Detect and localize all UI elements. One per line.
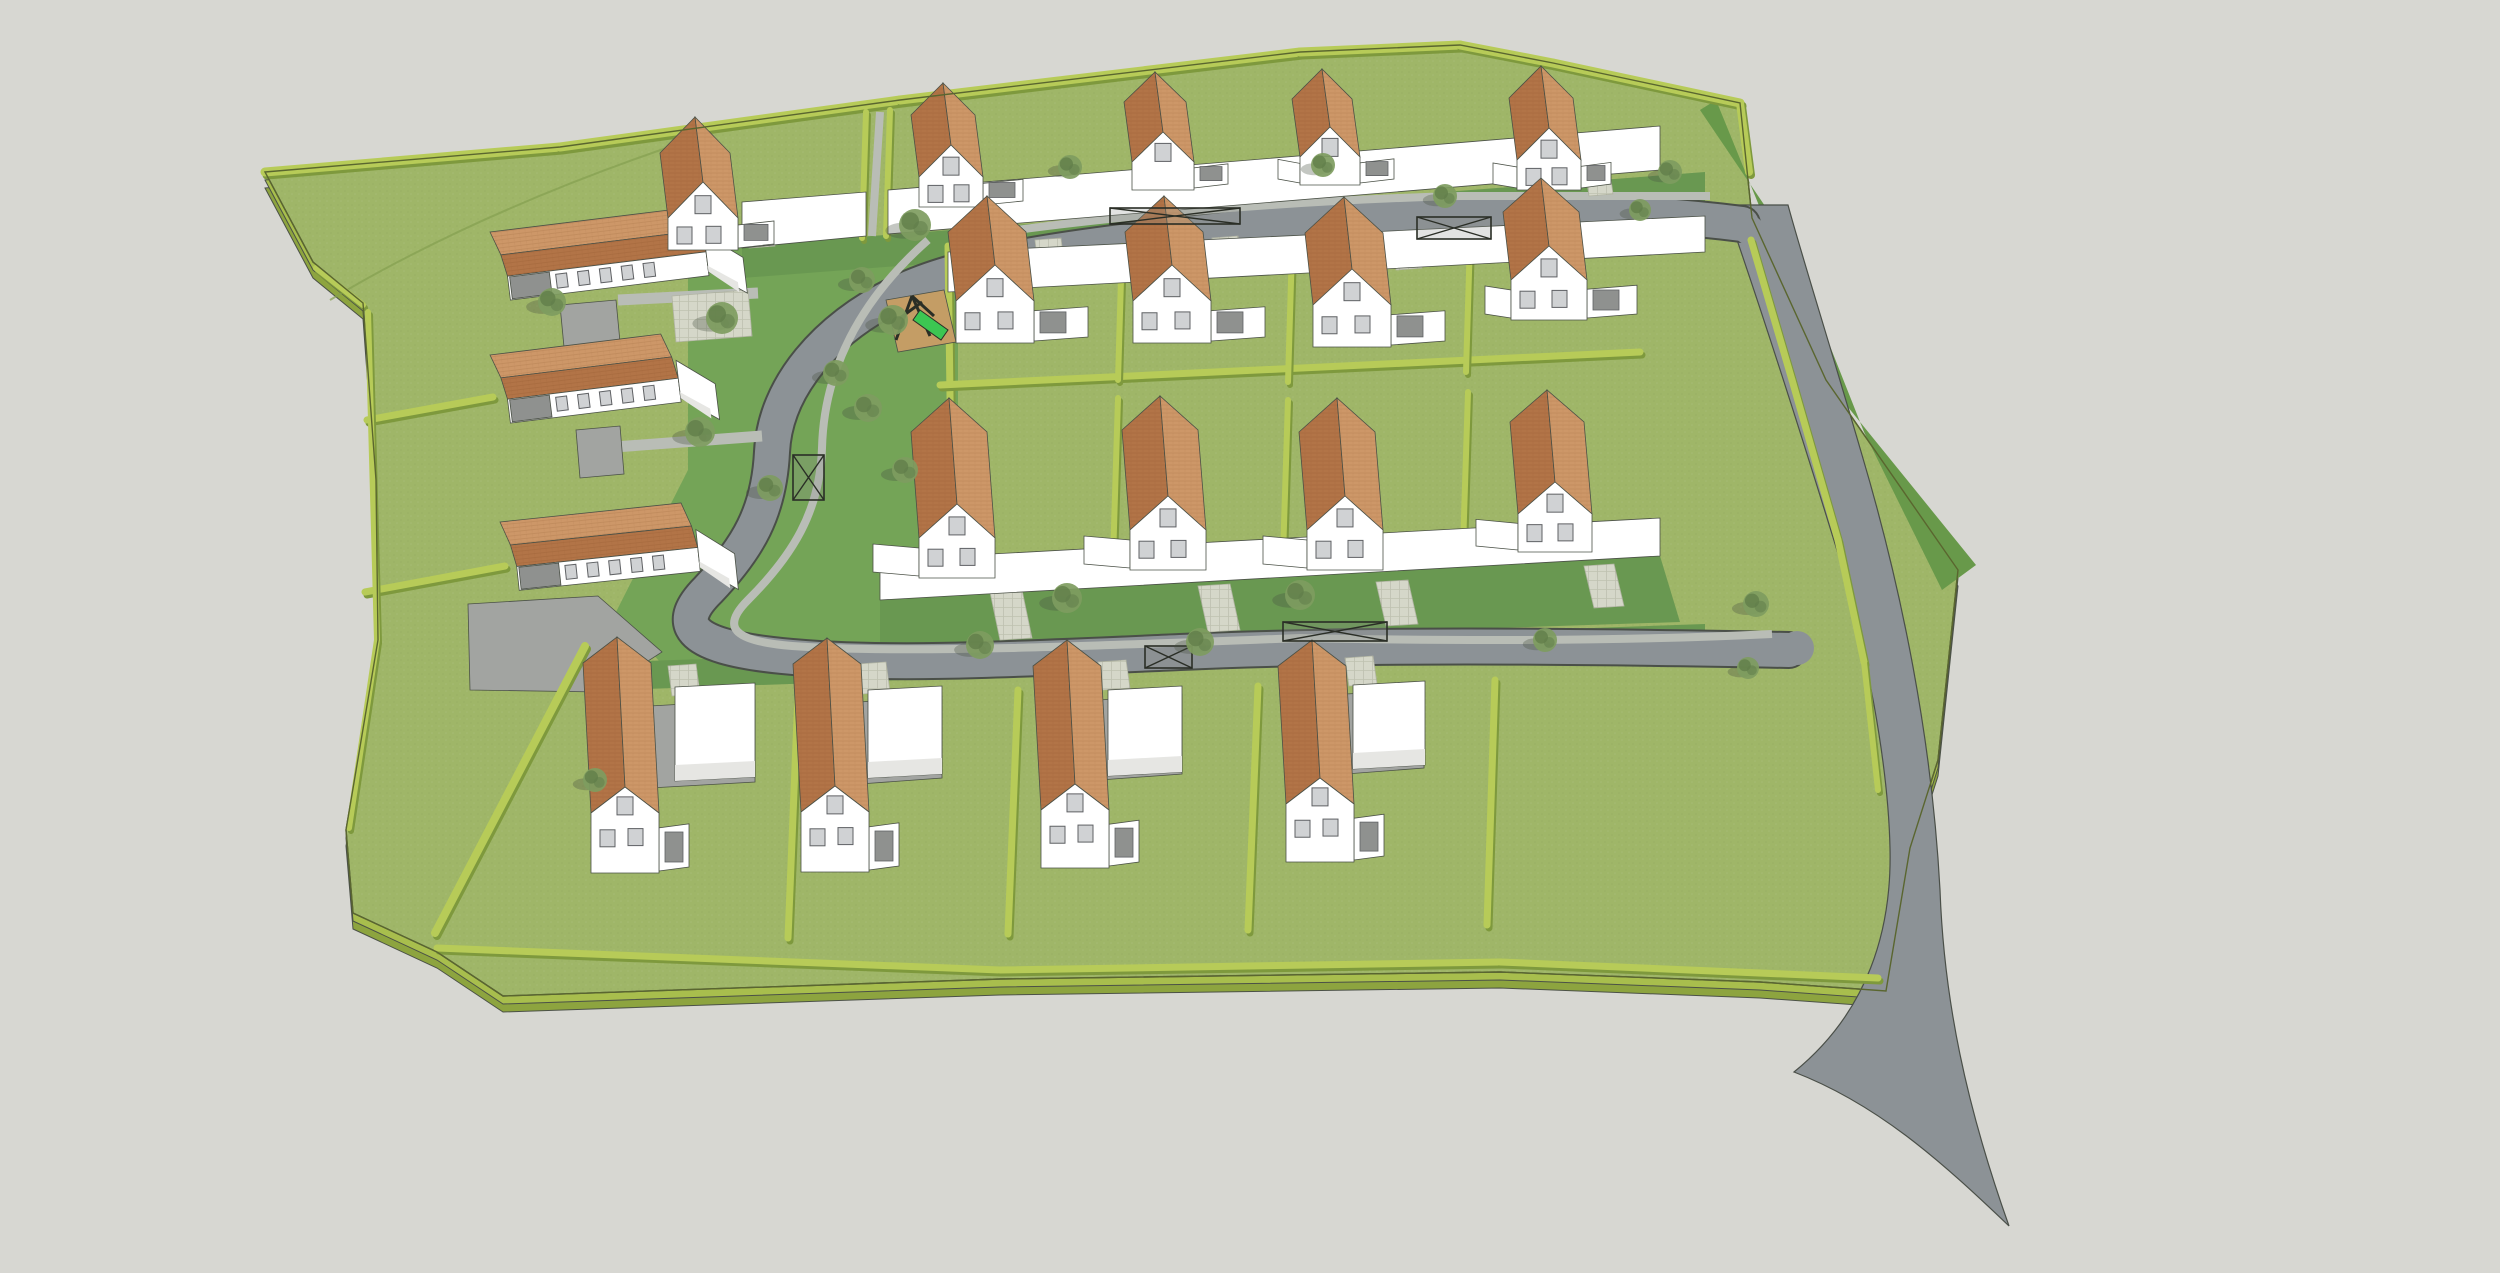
garage-wing [1485, 286, 1511, 318]
window [1337, 509, 1353, 527]
window [1164, 279, 1180, 297]
x-frame-shelter [1417, 217, 1491, 239]
window [1295, 820, 1310, 837]
window [1316, 541, 1331, 558]
window [1067, 794, 1083, 812]
garage-wing [1493, 163, 1517, 188]
garage-door [1217, 312, 1243, 333]
window [631, 557, 643, 572]
window [617, 797, 633, 815]
window [1142, 313, 1157, 330]
window [1552, 290, 1567, 307]
window [1171, 540, 1186, 557]
window [960, 548, 975, 565]
garage-door [1360, 822, 1378, 851]
garage-door [1587, 166, 1605, 181]
row-houses [490, 202, 747, 614]
carport [510, 395, 552, 422]
window [943, 157, 959, 175]
window [1527, 525, 1542, 542]
x-frame-shelter [1110, 208, 1240, 224]
garage-door [1593, 290, 1619, 310]
garage-wing [1278, 159, 1300, 183]
garage-door [989, 183, 1015, 198]
garage-door [1397, 316, 1423, 337]
window [577, 270, 590, 285]
garage-wing [1263, 536, 1307, 568]
window [599, 391, 612, 406]
window [565, 564, 577, 579]
window [949, 517, 965, 535]
garage-wing [873, 544, 919, 576]
window [838, 828, 853, 845]
window [556, 273, 569, 288]
window [954, 185, 969, 202]
window [1050, 826, 1065, 843]
window [1078, 825, 1093, 842]
window [609, 560, 621, 575]
garage-door [1200, 167, 1222, 181]
window [600, 830, 615, 847]
garage-door [665, 832, 683, 862]
courtyard [576, 426, 624, 478]
window [827, 796, 843, 814]
window [706, 226, 721, 243]
window [928, 549, 943, 566]
x-frame-shelter [1283, 622, 1387, 641]
window [1547, 494, 1563, 512]
window [628, 829, 643, 846]
window [556, 396, 569, 411]
window [652, 555, 664, 570]
garage-door [744, 224, 768, 240]
carport [519, 563, 561, 589]
window [1348, 540, 1363, 557]
window [1558, 524, 1573, 541]
scene-root [0, 0, 2500, 1273]
window [577, 393, 590, 408]
garage-door [1115, 828, 1133, 857]
window [1175, 312, 1190, 329]
site-plan-canvas [0, 0, 2500, 1273]
window [987, 279, 1003, 297]
window [1323, 819, 1338, 836]
window [587, 562, 599, 577]
window [965, 313, 980, 330]
garage-door [1040, 312, 1066, 333]
window [1541, 259, 1557, 277]
window [1155, 143, 1171, 161]
window [695, 196, 711, 214]
window [1355, 316, 1370, 333]
window [1160, 509, 1176, 527]
window [621, 265, 634, 280]
window [1520, 291, 1535, 308]
window [928, 185, 943, 202]
garage-wing [1476, 519, 1518, 550]
x-frame-shelter [793, 455, 824, 500]
window [621, 388, 634, 403]
sketchup-style-render [0, 0, 2500, 1273]
window [1139, 541, 1154, 558]
window [643, 385, 656, 400]
window [810, 829, 825, 846]
window [1322, 317, 1337, 334]
window [1541, 140, 1557, 158]
window [998, 312, 1013, 329]
garage-door [875, 831, 893, 861]
window [1312, 788, 1328, 806]
window [677, 227, 692, 244]
window [1344, 283, 1360, 301]
window [599, 268, 612, 283]
garage-wing [1084, 536, 1130, 568]
window [1552, 168, 1567, 185]
garage-door [1366, 162, 1388, 176]
window [643, 262, 656, 277]
